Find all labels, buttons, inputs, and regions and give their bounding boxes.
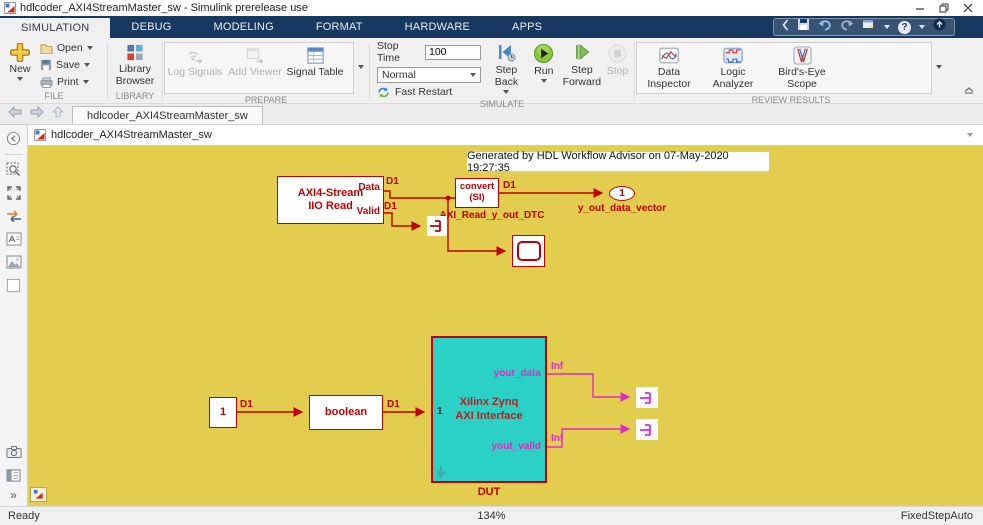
restore-button[interactable] <box>939 3 949 13</box>
group-label-review: REVIEW RESULTS <box>636 94 946 107</box>
group-label-simulate: SIMULATE <box>371 98 633 111</box>
close-button[interactable] <box>963 3 973 13</box>
add-viewer-label: Add Viewer <box>228 67 282 79</box>
signal-compare-icon[interactable] <box>4 206 24 226</box>
signal-label-d1: D1 <box>503 180 516 191</box>
sim-mode-caret-icon <box>470 73 476 77</box>
qat-redo-icon[interactable] <box>840 18 854 36</box>
logic-analyzer-label: Logic Analyzer <box>701 67 765 91</box>
add-viewer-button[interactable]: Add Viewer <box>225 43 285 93</box>
birdseye-scope-label: Bird's-Eye Scope <box>765 67 839 91</box>
data-inspector-button[interactable]: Data Inspector <box>637 43 701 93</box>
area-box-icon[interactable] <box>4 275 24 295</box>
run-label: Run <box>534 66 553 78</box>
palette-sidebar: » <box>0 125 28 506</box>
axi-port-data: Data <box>358 182 380 194</box>
constant-value: 1 <box>220 406 226 419</box>
prepare-gallery-caret-icon[interactable] <box>358 65 364 69</box>
ribbon-tab-strip: SIMULATION DEBUG MODELING FORMAT HARDWAR… <box>0 16 983 38</box>
print-caret-icon[interactable] <box>83 80 89 84</box>
birdseye-scope-icon <box>792 46 813 65</box>
model-canvas[interactable]: Generated by HDL Workflow Advisor on 07-… <box>28 146 983 506</box>
review-gallery-caret-icon[interactable] <box>936 65 942 69</box>
qat-help-caret-icon[interactable] <box>919 25 925 29</box>
sim-mode-value: Normal <box>382 69 416 81</box>
new-caret-icon <box>17 77 23 81</box>
new-label: New <box>9 64 30 76</box>
stop-icon <box>607 43 628 64</box>
qat-screenshot-icon[interactable] <box>862 18 876 36</box>
simulink-app-icon <box>4 2 16 14</box>
signal-label-d1: D1 <box>384 201 397 212</box>
nav-up-icon[interactable] <box>52 105 64 123</box>
ribbon-group-simulate: Stop Time Normal Fast Restart <box>371 40 633 103</box>
save-button[interactable]: Save <box>38 58 95 73</box>
generated-annotation[interactable]: Generated by HDL Workflow Advisor on 07-… <box>467 152 769 171</box>
signal-table-icon <box>306 46 325 65</box>
run-button[interactable]: Run <box>526 40 562 98</box>
breadcrumb-caret-icon[interactable] <box>967 133 973 137</box>
axi-block-line1: AXI4-Stream <box>298 187 363 200</box>
ribbon-separator <box>634 43 635 100</box>
tab-debug[interactable]: DEBUG <box>110 16 192 38</box>
dut-port-yout-valid: yout_valid <box>492 441 541 452</box>
terminator-icon <box>639 422 655 438</box>
dut-caption: DUT <box>431 486 547 498</box>
palette-divider <box>5 154 23 155</box>
hide-browser-icon[interactable] <box>4 128 24 148</box>
status-solver[interactable]: FixedStepAuto <box>683 510 983 522</box>
step-back-button[interactable]: Step Back <box>487 40 526 98</box>
log-signals-icon <box>184 46 206 65</box>
save-label: Save <box>56 59 80 71</box>
model-tab[interactable]: hdlcoder_AXI4StreamMaster_sw <box>72 106 263 124</box>
stop-time-input[interactable] <box>425 45 481 60</box>
nav-forward-icon[interactable] <box>30 105 44 123</box>
tab-simulation[interactable]: SIMULATION <box>0 18 110 38</box>
boolean-block[interactable]: boolean <box>309 395 383 430</box>
group-label-library: LIBRARY <box>109 90 161 103</box>
fit-to-view-icon[interactable] <box>4 183 24 203</box>
step-forward-button[interactable]: Step Forward <box>562 40 603 98</box>
group-label-prepare: PREPARE <box>164 94 368 107</box>
title-bar: hdlcoder_AXI4StreamMaster_sw - Simulink … <box>0 0 983 16</box>
convert-line2: (SI) <box>469 193 484 204</box>
save-caret-icon[interactable] <box>84 63 90 67</box>
ribbon-separator <box>369 43 370 100</box>
open-folder-icon <box>40 43 53 54</box>
subsystem-arrow-icon[interactable] <box>436 466 446 478</box>
add-viewer-icon <box>244 46 266 65</box>
minimize-button[interactable] <box>915 3 925 13</box>
ribbon-separator <box>162 43 163 100</box>
logic-analyzer-button[interactable]: Logic Analyzer <box>701 43 765 93</box>
stop-button[interactable]: Stop <box>602 40 633 98</box>
stop-time-label: Stop Time <box>377 40 421 64</box>
model-file-icon <box>34 129 46 141</box>
save-icon <box>40 59 52 71</box>
qat-uparrow-icon[interactable] <box>933 18 946 36</box>
scope-icon <box>516 240 542 262</box>
terminator-icon <box>429 218 445 234</box>
library-browser-label: Library Browser <box>109 64 161 88</box>
print-button[interactable]: Print <box>38 75 95 90</box>
model-tab-label: hdlcoder_AXI4StreamMaster_sw <box>87 110 248 122</box>
terminator-icon <box>639 390 655 406</box>
ribbon-separator <box>107 43 108 100</box>
dut-line1: Xilinx Zynq <box>460 396 519 408</box>
logic-analyzer-icon <box>722 46 744 65</box>
signal-label-inf: Inf <box>551 433 563 444</box>
outport-block[interactable]: 1 <box>609 186 635 201</box>
signal-table-button[interactable]: Signal Table <box>285 43 345 93</box>
fast-restart-toggle[interactable]: Fast Restart <box>377 86 481 98</box>
print-icon <box>40 77 53 88</box>
signal-table-label: Signal Table <box>286 67 343 79</box>
axi-block-line2: IIO Read <box>308 200 353 213</box>
annotation-image-icon[interactable] <box>4 229 24 249</box>
zoom-region-icon[interactable] <box>4 160 24 180</box>
sim-mode-dropdown[interactable]: Normal <box>377 67 481 83</box>
group-label-file: FILE <box>2 90 106 103</box>
step-forward-icon <box>571 43 593 63</box>
status-bar: Ready 134% FixedStepAuto <box>0 506 983 525</box>
breadcrumb: hdlcoder_AXI4StreamMaster_sw <box>28 125 983 146</box>
axi-port-valid: Valid <box>357 206 380 218</box>
data-inspector-label: Data Inspector <box>637 67 701 91</box>
terminator-block[interactable] <box>636 419 658 440</box>
run-caret-icon <box>541 79 547 83</box>
simulink-window: hdlcoder_AXI4StreamMaster_sw - Simulink … <box>0 0 983 525</box>
signal-label-d1: D1 <box>386 176 399 187</box>
qat-expand-icon[interactable] <box>782 18 789 36</box>
library-browser-button[interactable]: Library Browser <box>109 40 161 90</box>
breadcrumb-path[interactable]: hdlcoder_AXI4StreamMaster_sw <box>51 129 967 141</box>
collapse-ribbon-icon[interactable] <box>963 81 975 99</box>
step-back-caret-icon <box>503 90 509 94</box>
qat-undo-icon[interactable] <box>818 18 832 36</box>
new-icon <box>10 43 30 62</box>
data-inspector-icon <box>658 46 680 65</box>
tab-modeling[interactable]: MODELING <box>193 16 295 38</box>
boolean-label: boolean <box>325 406 367 419</box>
image-icon[interactable] <box>4 252 24 272</box>
window-title: hdlcoder_AXI4StreamMaster_sw - Simulink … <box>20 2 915 14</box>
print-label: Print <box>57 76 79 88</box>
step-back-label: Step Back <box>487 65 526 89</box>
step-forward-label: Step Forward <box>562 65 603 89</box>
dut-port-yout-data: yout_data <box>494 368 541 379</box>
open-button[interactable]: Open <box>38 41 95 56</box>
log-signals-button[interactable]: Log Signals <box>165 43 225 93</box>
ribbon-group-review: Data Inspector Logic Analyzer <box>636 40 946 103</box>
qat-screenshot-caret-icon[interactable] <box>884 25 890 29</box>
run-icon <box>533 43 554 64</box>
simulink-badge-icon[interactable] <box>30 487 47 502</box>
axi4-stream-iio-read-block[interactable]: AXI4-Stream IIO Read Data Valid <box>277 176 384 224</box>
tab-hardware[interactable]: HARDWARE <box>384 16 491 38</box>
status-state: Ready <box>0 510 300 522</box>
dut-line2: AXI Interface <box>455 410 522 422</box>
nav-back-icon[interactable] <box>8 105 22 123</box>
qat-help-icon[interactable]: ? <box>898 21 911 34</box>
signal-label-d1: D1 <box>387 399 400 410</box>
terminator-block[interactable] <box>636 387 658 408</box>
tab-format[interactable]: FORMAT <box>295 16 384 38</box>
stop-label: Stop <box>607 66 629 78</box>
dut-block[interactable]: Xilinx Zynq AXI Interface 1 yout_data yo… <box>431 336 547 483</box>
fast-restart-label: Fast Restart <box>395 86 452 98</box>
log-signals-label: Log Signals <box>168 67 223 79</box>
status-zoom-level: 134% <box>300 510 683 522</box>
constant-block[interactable]: 1 <box>209 397 237 428</box>
dtc-label: AXI_Read_y_out_DTC <box>428 210 556 221</box>
dut-port-in: 1 <box>437 406 443 417</box>
open-caret-icon[interactable] <box>87 46 93 50</box>
scope-block[interactable] <box>512 235 545 267</box>
birdseye-scope-button[interactable]: Bird's-Eye Scope <box>765 43 839 93</box>
signal-label-d1: D1 <box>240 399 253 410</box>
wire-junction-dot <box>446 196 451 201</box>
ribbon-group-library: Library Browser LIBRARY <box>109 40 161 103</box>
terminator-block[interactable] <box>427 216 447 236</box>
ribbon: New Open Save P <box>0 38 983 104</box>
wire-valid <box>384 213 420 226</box>
step-back-icon <box>495 43 517 63</box>
outport-name-label: y_out_data_vector <box>567 203 677 214</box>
outport-number: 1 <box>619 188 625 199</box>
tab-apps[interactable]: APPS <box>491 16 563 38</box>
library-browser-icon <box>125 43 145 62</box>
signal-label-inf: Inf <box>551 361 563 372</box>
qat-save-icon[interactable] <box>797 18 810 36</box>
fast-restart-icon <box>377 87 391 98</box>
palette-more-button[interactable]: » <box>10 488 17 502</box>
ribbon-group-prepare: Log Signals Add Viewer <box>164 40 368 103</box>
quick-access-toolbar: ? <box>773 18 955 36</box>
ribbon-group-file: New Open Save P <box>2 40 106 103</box>
open-label: Open <box>57 42 83 54</box>
convert-block[interactable]: convert (SI) <box>455 178 499 208</box>
model-browser-toggle-icon[interactable] <box>4 465 24 485</box>
new-button[interactable]: New <box>2 40 38 90</box>
screenshot-camera-icon[interactable] <box>4 442 24 462</box>
